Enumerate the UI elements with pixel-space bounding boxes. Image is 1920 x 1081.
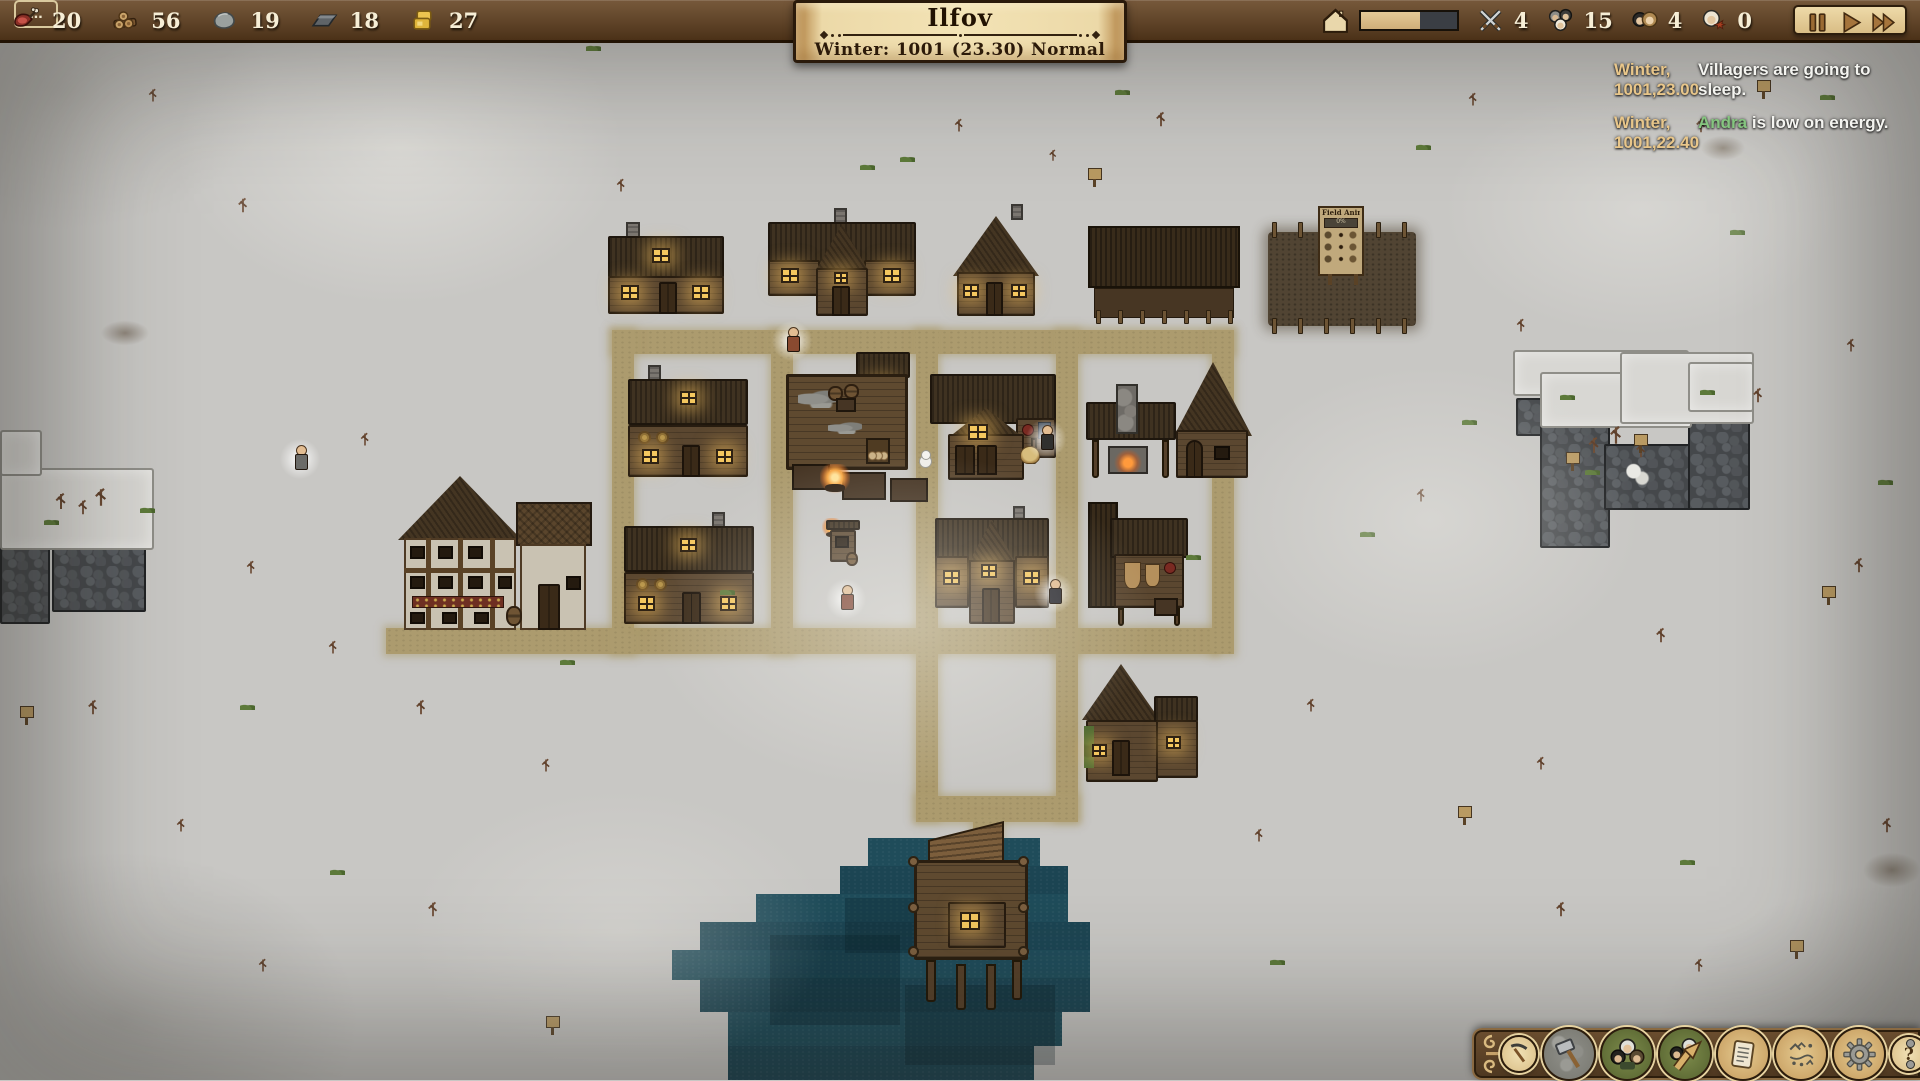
chimney-stone-part [1116, 384, 1138, 434]
crate-part [890, 478, 928, 502]
bare-sapling [1698, 960, 1700, 972]
roof-part [1110, 518, 1188, 558]
bare-sapling [1757, 389, 1759, 403]
gold-icon [409, 6, 438, 35]
winlit-part [692, 285, 710, 300]
fencepost-part [1402, 318, 1407, 334]
wall-part [1156, 720, 1198, 778]
beam-part [490, 538, 495, 630]
bare-sapling [432, 903, 434, 917]
ore-vein [1620, 460, 1654, 488]
gable-part [398, 476, 522, 540]
snow-plateau [0, 468, 154, 550]
wooden-marker-sign [1790, 940, 1804, 952]
villagers-icon [1546, 6, 1575, 35]
bare-sapling [1420, 490, 1422, 502]
fencepost-part [1096, 310, 1101, 324]
rock-cliff [0, 546, 50, 624]
bare-sapling [180, 820, 182, 832]
post-part [908, 946, 919, 957]
house-g[interactable] [1082, 664, 1198, 784]
market-stand[interactable] [826, 518, 860, 566]
resource-list: 2056191827 [12, 0, 478, 40]
grass-tuft [1270, 958, 1285, 965]
grass-tuft [1360, 530, 1375, 537]
fencepost-part [1228, 310, 1233, 324]
grass-tuft [1585, 468, 1600, 475]
barn[interactable] [1088, 226, 1240, 326]
bare-sapling [332, 642, 334, 654]
bare-sapling [1520, 320, 1522, 332]
snow-plateau [1688, 362, 1754, 412]
banner-sign-part [412, 596, 504, 608]
field-sign-progress: 0% [1324, 218, 1358, 228]
resource-stone-count: 19 [250, 8, 279, 33]
bare-sapling [1052, 150, 1053, 161]
villager[interactable] [277, 436, 323, 482]
fencepost-part [1376, 318, 1381, 334]
winlit-part [834, 272, 848, 284]
grass-tuft [140, 506, 155, 513]
grass-tuft [330, 868, 345, 875]
door-part [955, 445, 975, 475]
stat-villagers: 15 [1546, 6, 1613, 35]
bottom-toolbar: ? [1472, 1028, 1920, 1080]
fencepost-part [1206, 310, 1211, 324]
bare-sapling [1310, 700, 1312, 712]
pause-icon [1803, 8, 1832, 37]
stat-visitors: 0 [1699, 6, 1752, 35]
wooden-marker-sign [1458, 806, 1472, 818]
reditem-part [1164, 562, 1176, 574]
people-icon [1610, 1037, 1645, 1072]
resource-gold: 27 [409, 6, 478, 35]
door-part [538, 584, 560, 630]
fencepost-part [1298, 222, 1303, 238]
house-d[interactable] [628, 365, 748, 477]
winlit-part [642, 449, 659, 464]
door-part [682, 592, 701, 624]
stat-swords: 4 [1476, 6, 1529, 35]
gable-part [1174, 362, 1252, 436]
grass-tuft [1700, 388, 1715, 395]
stat-swords-count: 4 [1514, 8, 1529, 33]
windark-part [835, 536, 849, 548]
bare-sapling [1160, 113, 1162, 127]
bare-sapling [364, 434, 366, 446]
fencepost-part [1272, 222, 1277, 238]
fencepost-part [1350, 318, 1355, 334]
winlit-part [621, 285, 639, 300]
fencepost-part [1162, 310, 1167, 324]
event-message: Andra is low on energy. [1698, 113, 1914, 153]
resource-stone: 19 [210, 6, 279, 35]
barrel-part [846, 552, 858, 566]
bare-sapling [100, 489, 102, 506]
fast-forward-icon [1869, 8, 1898, 37]
bare-sapling [1560, 903, 1562, 917]
barnroof-part [1088, 226, 1240, 288]
grass-tuft [1462, 418, 1477, 425]
post-part [908, 902, 919, 913]
villager[interactable] [769, 318, 815, 364]
villagers-button[interactable] [1600, 1027, 1654, 1081]
forge-part [1108, 446, 1148, 474]
rock-cliff [1540, 420, 1610, 548]
build-button[interactable] [1542, 1027, 1596, 1081]
door-part [1186, 440, 1203, 478]
fencepost-part [1118, 310, 1123, 324]
resource-iron-count: 18 [350, 8, 379, 33]
bare-sapling [1615, 427, 1617, 444]
roof-part [826, 520, 860, 530]
winlit-part [960, 912, 980, 930]
wooden-marker-sign [1634, 434, 1648, 446]
bare-sapling [1850, 340, 1852, 352]
gear-icon [1842, 1037, 1877, 1072]
housing-meter [1359, 10, 1459, 31]
winlit-part [720, 596, 737, 611]
stat-couples: 4 [1630, 6, 1683, 35]
post-part [1018, 856, 1029, 867]
wooden-marker-sign [1566, 452, 1580, 464]
door-part [982, 588, 1000, 624]
mining-button[interactable] [1500, 1035, 1538, 1073]
meat-icon [12, 6, 41, 35]
fencepost-part [1272, 318, 1277, 334]
door-part [659, 282, 677, 314]
home-icon [1321, 6, 1350, 35]
snowman [918, 450, 930, 468]
grass-tuft [1878, 478, 1893, 485]
beam-part [426, 538, 431, 630]
mapmarks-icon [1784, 1037, 1819, 1072]
grass-tuft [1680, 858, 1695, 865]
grass-tuft [1115, 88, 1130, 95]
signpanel-part: Field Animals 0% [1318, 206, 1364, 276]
snow-plateau [0, 430, 42, 476]
winlit-part [716, 449, 733, 464]
hide-part [1124, 562, 1141, 589]
windark-part [438, 546, 453, 559]
crate-part [1154, 598, 1178, 616]
villager[interactable] [1031, 570, 1077, 616]
event-timestamp: Winter,1001,22.40 [1614, 113, 1688, 153]
winlit-part [680, 391, 697, 405]
crate-part [836, 398, 856, 412]
resource-wood-count: 56 [151, 8, 180, 33]
resource-wood: 56 [111, 6, 180, 35]
door-part [1112, 740, 1130, 776]
pasture-field[interactable]: Field Animals 0% [1268, 222, 1416, 334]
wreath-part [636, 578, 649, 591]
resource-meat: 20 [12, 6, 81, 35]
resource-meat-count: 20 [52, 8, 81, 33]
grass-tuft [860, 163, 875, 170]
event-message: Villagers are going to sleep. [1698, 60, 1914, 100]
pillar-part [1092, 440, 1099, 478]
hide-part [1145, 564, 1160, 587]
pillar-part [926, 960, 936, 1002]
fencepost-part [1184, 310, 1189, 324]
bare-sapling [620, 180, 622, 192]
winlit-part [968, 424, 988, 440]
play-icon [1836, 8, 1865, 37]
roof-shingle-part [516, 502, 592, 546]
winlit-part [781, 268, 799, 283]
house-e[interactable] [624, 512, 754, 624]
stat-villagers-count: 15 [1584, 8, 1613, 33]
iron-icon [310, 6, 339, 35]
barrel-part [844, 384, 859, 399]
wooden-marker-sign [20, 706, 34, 718]
bare-sapling [958, 120, 960, 132]
event-log-entry[interactable]: Winter,1001,23.00 Villagers are going to… [1614, 60, 1914, 100]
wreath-part [656, 431, 669, 444]
couples-icon [1630, 6, 1659, 35]
logpile-part [866, 438, 890, 464]
field-sign-row [1324, 242, 1358, 252]
pillar-part [1118, 608, 1124, 626]
grass-tuft [1416, 143, 1431, 150]
grass-tuft [720, 588, 735, 595]
wooden-marker-sign [546, 1016, 560, 1028]
scroll-icon [1726, 1037, 1761, 1072]
wooden-marker-sign [1088, 168, 1102, 180]
stockpile-camp[interactable] [786, 352, 910, 498]
winlit-part [638, 596, 655, 611]
fencepost-part [1324, 318, 1329, 334]
winlit-part [981, 564, 997, 578]
banner-divider [819, 31, 1101, 39]
winlit-part [943, 570, 960, 585]
house-c[interactable] [953, 204, 1039, 316]
toolbar-buttons: ? [1500, 1027, 1920, 1081]
bare-sapling [545, 760, 547, 772]
pickaxe-icon [1507, 1042, 1531, 1066]
winlit-part [1166, 736, 1181, 749]
bare-sapling [1540, 758, 1542, 770]
fencepost-part [1140, 310, 1145, 324]
post-part [1018, 902, 1029, 913]
bolt-icon [1906, 1039, 1915, 1048]
bare-sapling [60, 494, 62, 509]
wood-icon [111, 6, 140, 35]
journal-button[interactable] [1716, 1027, 1770, 1081]
grass-tuft [1186, 553, 1201, 560]
grass-tuft [1560, 393, 1575, 400]
windark-part [410, 576, 425, 589]
date-speed-label: Winter: 1001 (23.30) Normal [796, 39, 1124, 61]
dirt-smudge [1862, 852, 1920, 888]
villager[interactable] [1023, 416, 1069, 462]
grass-tuft [44, 518, 59, 525]
stone-icon [210, 6, 239, 35]
pause-button[interactable] [1803, 8, 1831, 32]
windark-part [468, 576, 483, 589]
gable-part [953, 216, 1039, 276]
stones-part [828, 422, 862, 434]
wooden-marker-sign [1822, 586, 1836, 598]
post-part [1018, 946, 1029, 957]
windark-part [498, 576, 512, 589]
fishing-dock[interactable] [908, 840, 1038, 998]
tanner[interactable] [1088, 502, 1188, 628]
grass-tuft [240, 703, 255, 710]
wreath-part [654, 578, 667, 591]
professions-button[interactable] [1658, 1027, 1712, 1081]
bare-sapling [420, 701, 422, 715]
door-part [832, 286, 850, 316]
door-part [977, 445, 997, 475]
field-sign-row [1324, 230, 1358, 240]
winlit-part [652, 248, 670, 263]
door-part [682, 445, 700, 477]
pillar-part [956, 964, 966, 1010]
grass-tuft [586, 44, 601, 51]
bare-sapling [1886, 819, 1888, 833]
roof-part [1154, 696, 1198, 722]
beam-part [458, 538, 463, 630]
dirt-smudge [100, 320, 150, 346]
villager[interactable] [823, 576, 869, 622]
fencepost-part [1402, 222, 1407, 238]
bare-sapling [250, 562, 252, 574]
stat-home [1321, 6, 1459, 35]
chimney-part [1011, 204, 1023, 220]
windark-part [438, 576, 453, 589]
event-log: Winter,1001,23.00 Villagers are going to… [1614, 60, 1914, 166]
bare-sapling [1660, 629, 1662, 643]
winlit-part [680, 538, 697, 552]
stats-group: 41540 [1321, 0, 1752, 40]
winlit-part [1011, 284, 1027, 298]
bare-sapling [1258, 830, 1260, 842]
pillar-part [986, 964, 996, 1010]
winlit-part [1092, 744, 1107, 757]
grass-tuft [560, 658, 575, 665]
windark-part [468, 546, 483, 559]
field-sign-title: Field Animals [1322, 209, 1360, 217]
bolt-icon [1906, 1060, 1915, 1069]
winlit-part [963, 284, 979, 298]
winlit-part [883, 268, 901, 283]
play-button[interactable] [1836, 8, 1864, 32]
settings-button[interactable] [1832, 1027, 1886, 1081]
windark-part [474, 612, 489, 624]
door-part [986, 282, 1003, 316]
bare-sapling [1472, 94, 1474, 106]
stat-visitors-count: 0 [1737, 8, 1752, 33]
grass-tuft [1730, 228, 1745, 235]
hammer-icon [1552, 1037, 1587, 1072]
bare-sapling [1858, 559, 1860, 573]
help-button[interactable]: ? [1890, 1035, 1920, 1073]
resource-gold-count: 27 [449, 8, 478, 33]
house-b[interactable] [768, 208, 916, 316]
fire-part [820, 464, 850, 494]
smithy[interactable] [1086, 362, 1252, 480]
windark-part [1214, 446, 1230, 460]
windark-part [410, 546, 425, 559]
fencepost-part [1298, 318, 1303, 334]
bare-sapling [242, 199, 244, 213]
pillar-part [1012, 960, 1022, 1000]
field-sign-row [1324, 254, 1358, 264]
house-a[interactable] [608, 222, 724, 314]
rock-cliff [52, 542, 146, 612]
playback-controls [1793, 5, 1907, 35]
fencepost-part [1376, 222, 1381, 238]
people-arrow-icon [1668, 1037, 1703, 1072]
windark-part [442, 612, 457, 624]
bare-sapling [92, 701, 94, 715]
bare-sapling [262, 960, 264, 972]
bare-sapling [152, 90, 154, 102]
resource-iron: 18 [310, 6, 379, 35]
visitors-icon [1699, 6, 1728, 35]
fast-forward-button[interactable] [1869, 8, 1897, 32]
stat-couples-count: 4 [1668, 8, 1683, 33]
village-banner: Ilfov Winter: 1001 (23.30) Normal [793, 0, 1127, 63]
gable-part [1082, 664, 1160, 720]
post-part [908, 856, 919, 867]
bare-sapling [82, 501, 84, 515]
event-log-entry[interactable]: Winter,1001,22.40 Andra is low on energy… [1614, 113, 1914, 153]
bare-sapling [1593, 438, 1595, 453]
grass-tuft [900, 155, 915, 162]
housing-meter-fill [1361, 12, 1421, 29]
dirt-road [916, 796, 1078, 822]
swords-icon [1476, 6, 1505, 35]
wreath-part [638, 431, 651, 444]
toolbar-scroll-ornament [1480, 1032, 1496, 1076]
world-map-button[interactable] [1774, 1027, 1828, 1081]
windark-part [410, 612, 425, 624]
windark-part [566, 576, 581, 590]
village-name: Ilfov [796, 5, 1124, 31]
pillar-part [1162, 440, 1169, 478]
tavern[interactable] [398, 476, 592, 632]
barrel-part [506, 606, 522, 626]
event-timestamp: Winter,1001,23.00 [1614, 60, 1688, 100]
